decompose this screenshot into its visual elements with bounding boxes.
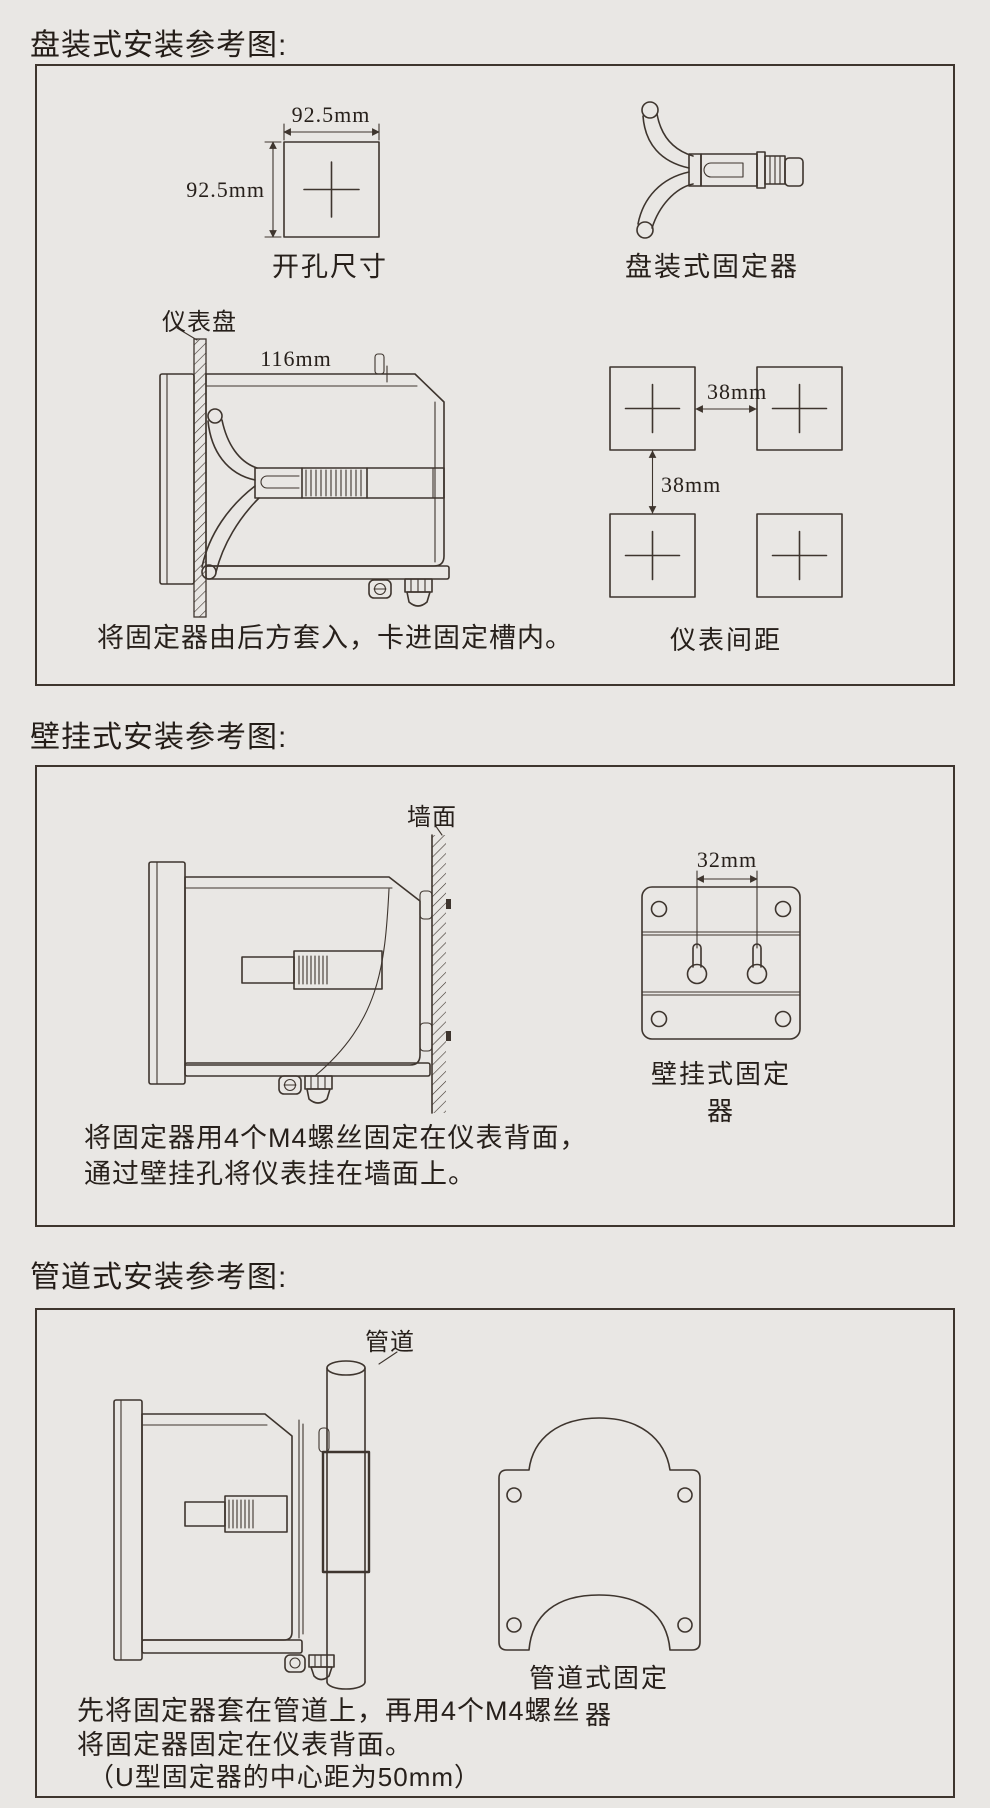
section-title-panel: 盘装式安装参考图: xyxy=(30,20,287,64)
section-title-pipe: 管道式安装参考图: xyxy=(30,1252,287,1296)
pipe-instruction-line1: 先将固定器套在管道上，再用4个M4螺丝 xyxy=(77,1695,581,1727)
panel-cutout-drawing: 92.5mm 92.5mm xyxy=(186,102,379,237)
panel-fixture-caption: 盘装式固定器 xyxy=(622,245,802,284)
spacing-caption: 仪表间距 xyxy=(656,620,796,657)
cutout-width-dim: 92.5mm xyxy=(292,102,371,127)
pipe-instruction-line2: 将固定器固定在仪表背面。 xyxy=(77,1729,413,1761)
wall-fixture-drawing: 32mm xyxy=(642,847,800,1039)
pipe-side-view-drawing xyxy=(114,1352,397,1689)
panel-side-view-drawing: 116mm xyxy=(160,328,449,617)
cutout-caption: 开孔尺寸 xyxy=(260,245,400,284)
panel-mount-diagram-svg: 92.5mm 92.5mm xyxy=(37,66,953,684)
pipe-instruction-line3: （U型固定器的中心距为50mm） xyxy=(88,1761,481,1793)
wall-surface-label: 墙面 xyxy=(407,797,457,832)
spacing-h-dim: 38mm xyxy=(707,379,767,404)
depth-dim: 116mm xyxy=(260,346,331,371)
wall-instruction-line2: 通过壁挂孔将仪表挂在墙面上。 xyxy=(84,1158,476,1190)
panel-section-box: 92.5mm 92.5mm xyxy=(35,64,955,686)
page: { "colors": {"background": "#e9e7e4", "l… xyxy=(0,0,990,1808)
section-title-wall: 壁挂式安装参考图: xyxy=(30,712,287,756)
panel-fixture-drawing xyxy=(637,102,803,238)
spacing-v-dim: 38mm xyxy=(661,472,721,497)
pipe-section-box: 管道 管道式固定器 先将固定器套在管道上，再用4个M4螺丝 将固定器固定在仪表背… xyxy=(35,1308,955,1798)
wall-side-view-drawing xyxy=(149,825,451,1113)
wall-mount-diagram-svg: 32mm xyxy=(37,767,953,1225)
wall-fixture-caption: 壁挂式固定器 xyxy=(641,1054,801,1128)
wall-instruction-line1: 将固定器用4个M4螺丝固定在仪表背面， xyxy=(84,1122,588,1154)
meter-spacing-drawing: 38mm 38mm xyxy=(610,367,842,597)
wall-hole-spacing-dim: 32mm xyxy=(697,847,757,872)
cutout-height-dim: 92.5mm xyxy=(186,177,265,202)
pipe-fixture-drawing xyxy=(499,1418,700,1650)
pipe-label: 管道 xyxy=(365,1322,415,1357)
panel-board-label: 仪表盘 xyxy=(162,302,237,337)
wall-section-box: 32mm 墙面 壁挂式固定器 将固定器用4个M4螺丝固定在仪表背面， 通过壁挂孔… xyxy=(35,765,955,1227)
panel-instruction: 将固定器由后方套入，卡进固定槽内。 xyxy=(97,622,573,654)
